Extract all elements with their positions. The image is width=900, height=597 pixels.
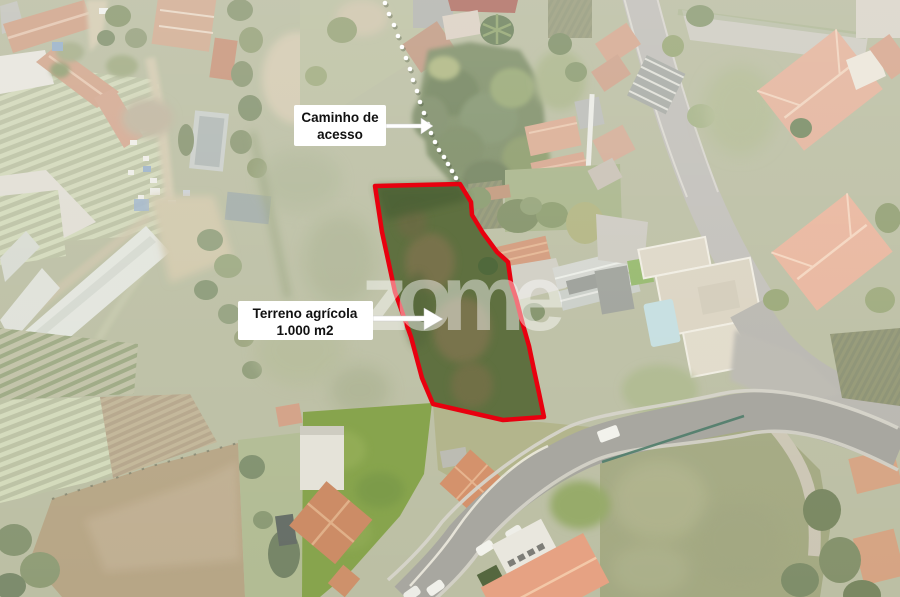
svg-text:1.000 m2: 1.000 m2 xyxy=(276,323,333,338)
svg-text:acesso: acesso xyxy=(317,127,363,142)
svg-text:Terreno agrícola: Terreno agrícola xyxy=(253,306,358,321)
svg-text:zome: zome xyxy=(361,245,563,350)
svg-text:Caminho de: Caminho de xyxy=(301,110,379,125)
